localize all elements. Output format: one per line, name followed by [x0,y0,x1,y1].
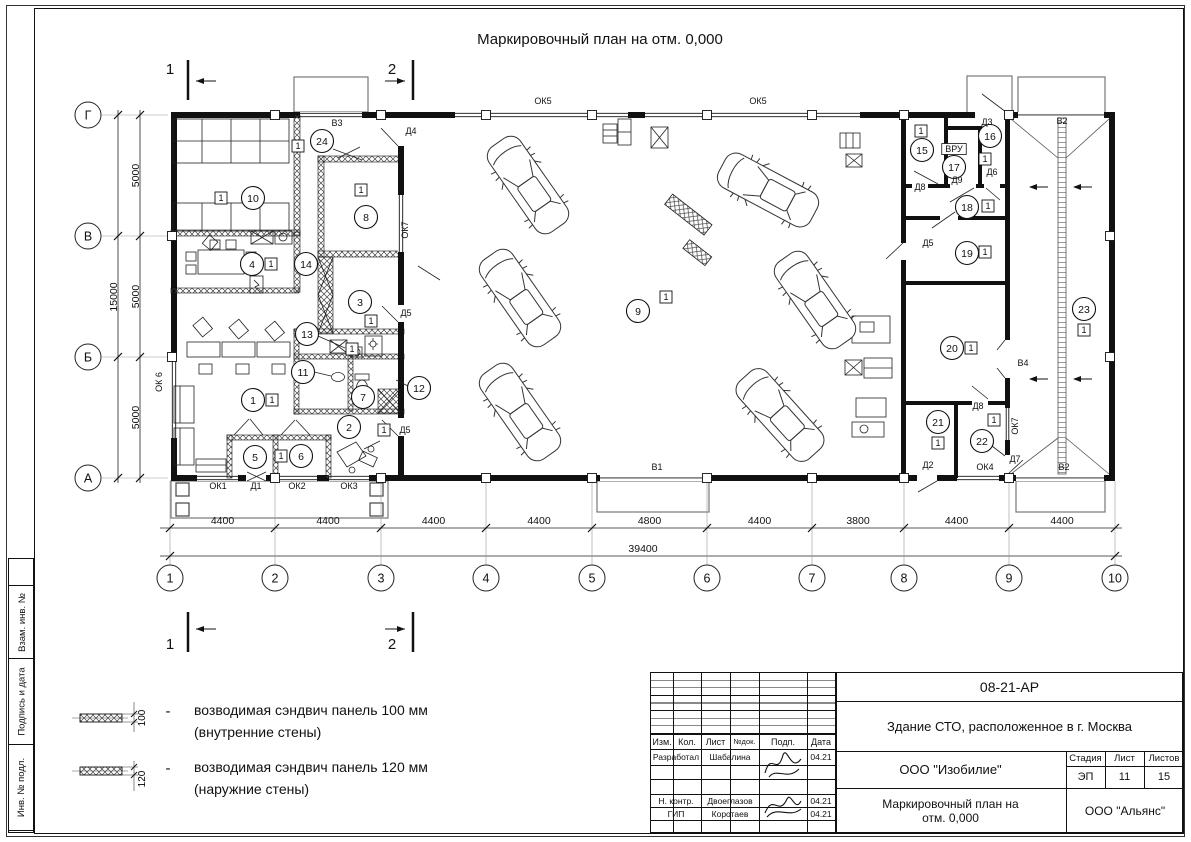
svg-text:4400: 4400 [211,515,235,527]
svg-text:1: 1 [167,572,174,586]
svg-text:Д1: Д1 [250,481,261,491]
svg-text:13: 13 [301,329,313,341]
svg-text:20: 20 [946,343,958,355]
svg-text:39400: 39400 [628,543,657,555]
tb-name: Шабалина [701,749,759,765]
title-block: Изм. Кол. Лист №док. Подп. Дата Разработ… [650,672,1183,833]
svg-text:ОК7: ОК7 [1010,417,1020,434]
svg-text:Д5: Д5 [399,425,410,435]
opening-label-Д8: Д8 [972,401,983,411]
tb-date: 04.21 [807,807,835,820]
tb-sheet-label: Лист [1105,751,1144,766]
tb-drawing-title: Маркировочный план на отм. 0,000 [835,788,1066,834]
room-marker-3: 31 [349,291,378,328]
svg-text:1: 1 [268,259,273,269]
svg-text:9: 9 [1006,572,1013,586]
opening-label-Д9: Д9 [951,175,962,185]
signature-icon [761,791,805,821]
svg-text:1: 1 [982,154,987,164]
opening-label-Д7: Д7 [1009,454,1020,464]
svg-text:9: 9 [635,306,641,318]
svg-text:1: 1 [269,395,274,405]
tb-col-list: Лист [701,734,730,749]
tb-sheets-value: 15 [1144,766,1184,788]
svg-text:В: В [84,230,92,244]
svg-text:15: 15 [916,145,928,157]
svg-text:2: 2 [388,61,396,78]
svg-text:3: 3 [357,297,363,309]
ramp-bay [1011,118,1109,474]
svg-text:1: 1 [381,425,386,435]
legend-text-line: возводимая сэндвич панель 120 мм [194,757,428,779]
wall-symbol-100-icon: 100 [72,700,156,736]
svg-text:12: 12 [413,383,425,395]
opening-label-В4: В4 [1017,358,1028,368]
opening-label-Д8: Д8 [914,182,925,192]
svg-text:Г: Г [85,109,92,123]
svg-text:7: 7 [360,392,366,404]
svg-text:1: 1 [368,316,373,326]
opening-label-ОК5: ОК5 [749,96,766,106]
svg-text:Д8: Д8 [972,401,983,411]
legend-dash: - [156,757,180,779]
outer-walls [171,112,1115,481]
room-marker-1: 11 [242,389,279,412]
room-marker-7: 7 [352,386,375,409]
svg-text:4800: 4800 [638,515,662,527]
dimension-lines: 4400440044004400480044003800440044003940… [102,110,1122,565]
svg-text:10: 10 [247,193,259,205]
svg-text:Б: Б [84,351,92,365]
svg-text:10: 10 [1108,572,1122,586]
tb-sheets-label: Листов [1144,751,1184,766]
svg-text:Д6: Д6 [986,167,997,177]
svg-text:14: 14 [300,259,312,271]
svg-text:4400: 4400 [1050,515,1074,527]
tb-role: Н. контр. [651,794,701,807]
room-marker-15: 151 [911,125,934,162]
svg-text:5000: 5000 [130,406,142,430]
room-marker-20: 201 [941,337,978,360]
svg-text:Д9: Д9 [951,175,962,185]
svg-text:16: 16 [984,131,996,143]
opening-label-ВРУ: ВРУ [942,144,967,155]
svg-text:1: 1 [968,343,973,353]
svg-text:В2: В2 [1058,462,1069,472]
svg-text:1: 1 [166,636,174,653]
svg-text:4400: 4400 [422,515,446,527]
drawing-sheet: Маркировочный план на отм. 0,000 Взам. и… [0,0,1191,842]
svg-text:23: 23 [1078,304,1090,316]
room-marker-11: 11 [292,361,315,384]
svg-text:4: 4 [249,259,255,271]
svg-text:4400: 4400 [945,515,969,527]
tb-contractor: ООО "Альянс" [1066,788,1184,834]
legend-text-line: (внутренние стены) [194,722,428,744]
svg-text:1: 1 [1081,325,1086,335]
room-marker-5: 5 [244,446,267,469]
opening-label-Д6: Д6 [986,167,997,177]
svg-text:4400: 4400 [527,515,551,527]
svg-text:1: 1 [918,126,923,136]
tb-col-kol: Кол. [673,734,701,749]
opening-label-В2: В2 [1058,462,1069,472]
tb-doc-number: 08-21-АР [835,673,1184,701]
svg-text:1: 1 [295,141,300,151]
svg-text:1: 1 [985,201,990,211]
signature-icon [761,747,805,781]
opening-label-Д1: Д1 [250,481,261,491]
tb-date: 04.21 [807,749,835,765]
tb-stage-value: ЭП [1066,766,1105,788]
svg-text:4400: 4400 [316,515,340,527]
opening-label-ОК 6: ОК 6 [154,372,164,392]
tb-date: 04.21 [807,794,835,807]
opening-label-ОК1: ОК1 [209,481,226,491]
svg-text:6: 6 [298,451,304,463]
opening-label-ОК2: ОК2 [288,481,305,491]
opening-label-В1: В1 [651,462,662,472]
opening-label-ОК7: ОК7 [1010,417,1020,434]
legend: 100 - возводимая сэндвич панель 100 мм (… [72,700,552,801]
svg-text:7: 7 [809,572,816,586]
svg-text:17: 17 [948,162,960,174]
svg-text:1: 1 [349,344,354,354]
svg-text:ВРУ: ВРУ [945,144,963,154]
wall-symbol-120-icon: 120 [72,757,156,793]
svg-text:1: 1 [218,193,223,203]
svg-text:ОК5: ОК5 [749,96,766,106]
room-marker-19: 191 [956,242,992,265]
tb-sheet-value: 11 [1105,766,1144,788]
svg-text:3800: 3800 [846,515,870,527]
svg-text:1: 1 [166,61,174,78]
tb-company: ООО "Изобилие" [835,751,1066,788]
room-marker-10: 101 [215,187,265,210]
svg-text:1: 1 [982,247,987,257]
room-marker-6: 61 [275,445,313,468]
svg-text:В4: В4 [1017,358,1028,368]
svg-text:2: 2 [272,572,279,586]
tb-name: Коротаев [701,807,759,820]
tb-col-data: Дата [807,734,835,749]
svg-text:Д8: Д8 [914,182,925,192]
svg-text:А: А [84,472,93,486]
svg-text:Д5: Д5 [400,308,411,318]
room-marker-22: 221 [971,414,1001,453]
svg-text:ОК5: ОК5 [534,96,551,106]
svg-text:15000: 15000 [108,282,120,311]
svg-text:1: 1 [250,395,256,407]
svg-text:1: 1 [991,415,996,425]
svg-text:4400: 4400 [748,515,772,527]
tb-role: Разработал [651,749,701,765]
room-marker-14: 14 [295,253,318,276]
opening-label-ОК3: ОК3 [340,481,357,491]
room-marker-12: 12 [408,377,431,400]
svg-text:5000: 5000 [130,285,142,309]
room-marker-18: 181 [956,196,995,219]
svg-text:3: 3 [378,572,385,586]
room-marker-23: 231 [1073,298,1096,337]
svg-text:22: 22 [976,436,988,448]
svg-text:1: 1 [278,451,283,461]
svg-text:11: 11 [298,367,309,379]
legend-dim-label: 120 [137,771,148,788]
bottom-wall-openings [197,475,1104,481]
opening-label-В3: В3 [331,118,342,128]
svg-text:Д4: Д4 [405,126,416,136]
svg-text:19: 19 [961,248,973,260]
svg-text:5: 5 [252,452,258,464]
svg-text:2: 2 [346,422,352,434]
svg-text:Д5: Д5 [922,238,933,248]
opening-label-В2: В2 [1056,116,1067,126]
svg-text:В2: В2 [1056,116,1067,126]
room-marker-16: 161 [979,125,1002,166]
revision-rows [651,673,835,734]
svg-text:1: 1 [935,438,940,448]
svg-text:ОК1: ОК1 [209,481,226,491]
opening-label-Д5: Д5 [399,425,410,435]
svg-text:8: 8 [363,212,369,224]
opening-label-Д4: Д4 [405,126,416,136]
room-markers: 1012418141143113111117122156191151161171… [215,125,1096,469]
svg-text:2: 2 [388,636,396,653]
svg-text:ОК3: ОК3 [340,481,357,491]
svg-text:В3: В3 [331,118,342,128]
svg-text:ОК 6: ОК 6 [154,372,164,392]
svg-text:5000: 5000 [130,164,142,188]
svg-text:1: 1 [358,185,363,195]
svg-text:Д7: Д7 [1009,454,1020,464]
legend-text-line: (наружние стены) [194,779,428,801]
svg-text:24: 24 [316,136,328,148]
opening-label-Д3: Д3 [981,117,992,127]
svg-text:В1: В1 [651,462,662,472]
legend-item: 100 - возводимая сэндвич панель 100 мм (… [72,700,552,743]
wall-gaps [398,118,1010,473]
tb-col-ndok: №док. [730,734,759,749]
svg-text:8: 8 [901,572,908,586]
room-marker-2: 21 [338,416,391,439]
opening-label-ОК5: ОК5 [534,96,551,106]
svg-text:18: 18 [961,202,973,214]
legend-dim-label: 100 [137,709,148,726]
svg-text:Д2: Д2 [922,460,933,470]
svg-text:6: 6 [704,572,711,586]
tb-role: ГИП [651,807,701,820]
room-marker-8: 81 [355,184,378,229]
svg-text:ОК2: ОК2 [288,481,305,491]
legend-item: 120 - возводимая сэндвич панель 120 мм (… [72,757,552,800]
legend-text-line: возводимая сэндвич панель 100 мм [194,700,428,722]
svg-text:5: 5 [589,572,596,586]
room-marker-21: 211 [927,411,950,450]
tb-name: Двоеглазов [701,794,759,807]
tb-project-name: Здание СТО, расположенное в г. Москва [835,701,1184,751]
legend-dash: - [156,700,180,722]
opening-label-Д2: Д2 [922,460,933,470]
svg-text:21: 21 [932,417,944,429]
opening-label-Д5: Д5 [922,238,933,248]
tb-col-izm: Изм. [651,734,673,749]
svg-text:ОК4: ОК4 [976,462,993,472]
opening-label-ОК4: ОК4 [976,462,993,472]
svg-text:4: 4 [483,572,490,586]
tb-stage-label: Стадия [1066,751,1105,766]
opening-label-Д5: Д5 [400,308,411,318]
room-marker-4: 41 [241,253,278,276]
room-marker-9: 91 [627,291,673,323]
interior-solid-walls [398,112,1010,481]
opening-label-ОК7: ОК7 [400,221,410,238]
svg-text:Д3: Д3 [981,117,992,127]
svg-text:1: 1 [663,292,668,302]
svg-text:ОК7: ОК7 [400,221,410,238]
